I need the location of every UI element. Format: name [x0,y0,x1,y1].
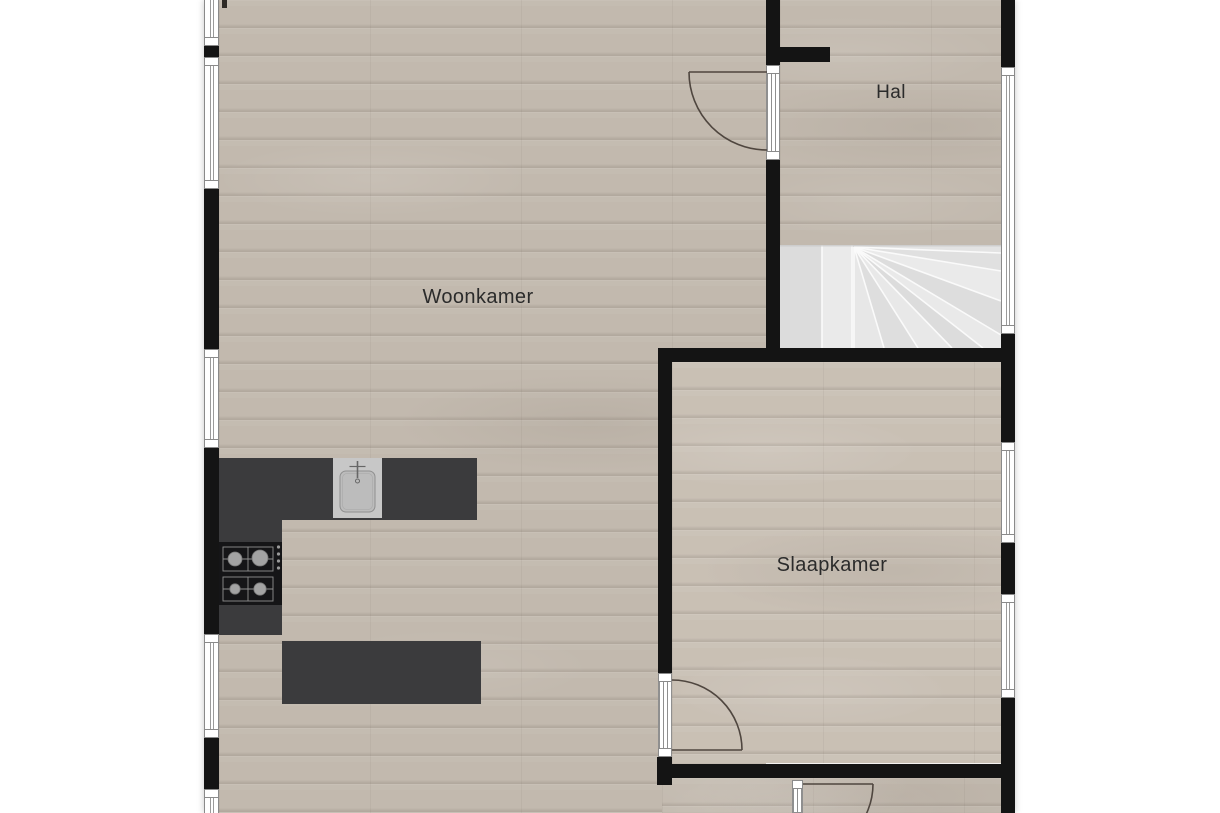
floorplan-canvas: Woonkamer Hal Slaapkamer [0,0,1220,813]
room-label-woonkamer: Woonkamer [422,286,533,309]
room-label-hal: Hal [876,82,906,104]
door-swing-icon [0,0,1220,813]
room-label-slaapkamer: Slaapkamer [777,554,888,577]
